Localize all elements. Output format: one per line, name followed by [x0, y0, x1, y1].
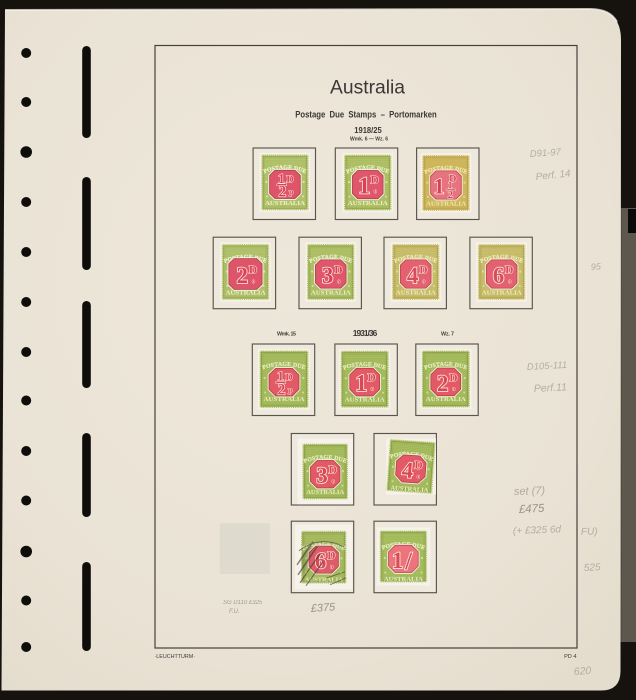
svg-text:PD 4: PD 4 — [564, 654, 576, 660]
svg-text:3: 3 — [316, 463, 328, 488]
svg-text:AUSTRALIA: AUSTRALIA — [348, 200, 388, 207]
svg-text:D: D — [419, 264, 427, 276]
svg-text:Perf.11: Perf.11 — [534, 381, 568, 395]
svg-text:D105-111: D105-111 — [527, 360, 568, 373]
svg-text:1931/36: 1931/36 — [353, 328, 378, 338]
svg-text:D: D — [505, 264, 513, 276]
svg-text:2: 2 — [437, 371, 449, 396]
svg-text:Australia: Australia — [330, 77, 405, 99]
svg-text:o: o — [371, 386, 374, 393]
svg-text:2: 2 — [279, 184, 287, 201]
svg-text:o: o — [452, 386, 455, 393]
svg-text:AUSTRALIA: AUSTRALIA — [482, 290, 522, 297]
svg-text:1: 1 — [355, 371, 367, 397]
svg-text:Wz. 7: Wz. 7 — [441, 332, 454, 338]
svg-text:set (7): set (7) — [514, 485, 546, 498]
svg-text:o: o — [252, 278, 255, 285]
svg-text:3: 3 — [322, 263, 334, 288]
svg-text:AUSTRALIA: AUSTRALIA — [265, 200, 305, 207]
svg-text:Wmk. 6 — Wz. 6: Wmk. 6 — Wz. 6 — [350, 137, 388, 143]
svg-text:AUSTRALIA: AUSTRALIA — [226, 290, 266, 297]
svg-text:D: D — [449, 372, 457, 384]
svg-text:AUSTRALIA: AUSTRALIA — [264, 396, 305, 403]
svg-text:AUSTRALIA: AUSTRALIA — [426, 201, 466, 208]
svg-text:D: D — [368, 372, 376, 384]
svg-text:o: o — [416, 473, 420, 480]
svg-text:FU): FU) — [581, 526, 598, 538]
svg-text:AUSTRALIA: AUSTRALIA — [306, 489, 344, 496]
svg-text:o: o — [508, 278, 511, 285]
svg-text:Wmk. 15: Wmk. 15 — [277, 332, 296, 338]
svg-text:D91-97: D91-97 — [529, 147, 562, 160]
svg-text:2: 2 — [448, 189, 454, 201]
svg-text:D: D — [286, 175, 294, 186]
svg-text:D: D — [329, 465, 337, 477]
svg-text:D: D — [327, 550, 335, 562]
svg-text:SG D110 £325: SG D110 £325 — [223, 600, 263, 606]
svg-text:o: o — [332, 478, 335, 485]
svg-text:D: D — [334, 264, 342, 276]
svg-text:6: 6 — [493, 263, 505, 288]
svg-text:£475: £475 — [518, 503, 546, 516]
svg-text:o: o — [422, 278, 425, 285]
svg-text:1918/25: 1918/25 — [354, 125, 382, 135]
svg-text:D: D — [249, 264, 257, 276]
svg-text:D: D — [371, 175, 379, 187]
svg-text:AUSTRALIA: AUSTRALIA — [426, 396, 466, 403]
svg-text:P: P — [288, 387, 293, 396]
svg-text:£375: £375 — [309, 601, 336, 615]
svg-text:D: D — [285, 372, 293, 383]
svg-text:·LEUCHTTURM·: ·LEUCHTTURM· — [155, 654, 196, 660]
svg-text:(+ £325 6d: (+ £325 6d — [513, 524, 562, 537]
svg-text:2: 2 — [237, 263, 249, 288]
svg-text:/: / — [404, 548, 413, 575]
svg-text:F.U.: F.U. — [229, 609, 240, 615]
svg-text:AUSTRALIA: AUSTRALIA — [384, 576, 423, 583]
svg-text:o: o — [330, 563, 333, 570]
svg-text:Postage Due Stamps – Porto: Postage Due Stamps – Portomarken — [295, 109, 437, 120]
svg-text:AUSTRALIA: AUSTRALIA — [345, 396, 385, 403]
svg-text:o: o — [337, 278, 340, 285]
svg-text:1: 1 — [392, 548, 404, 573]
svg-text:AUSTRALIA: AUSTRALIA — [311, 290, 351, 297]
svg-text:95: 95 — [590, 261, 602, 272]
svg-text:525: 525 — [584, 562, 602, 574]
svg-text:4: 4 — [407, 263, 419, 288]
svg-text:o: o — [374, 188, 377, 195]
svg-text:620: 620 — [573, 665, 591, 678]
svg-text:P: P — [289, 189, 294, 198]
svg-text:1: 1 — [358, 174, 370, 200]
svg-text:1: 1 — [434, 174, 445, 199]
svg-text:D: D — [414, 460, 423, 473]
svg-text:4: 4 — [401, 457, 415, 483]
svg-text:AUSTRALIA: AUSTRALIA — [396, 290, 436, 297]
